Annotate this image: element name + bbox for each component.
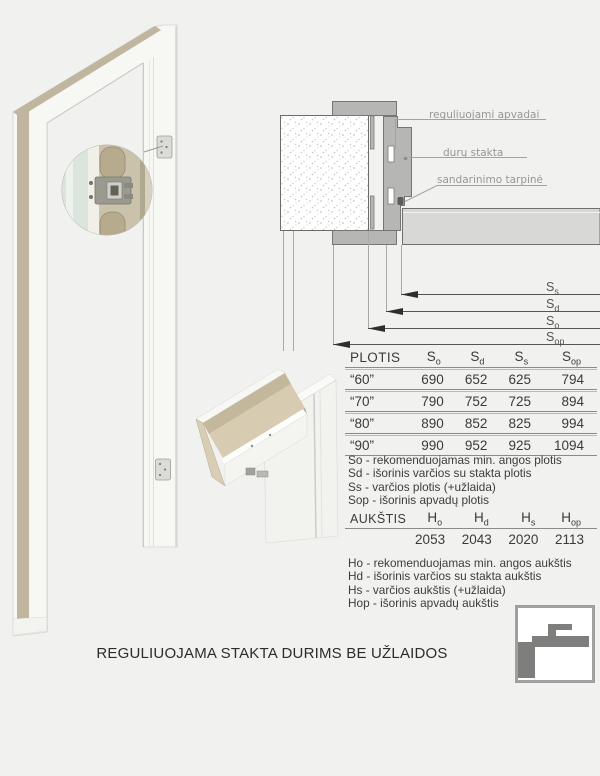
row-label: “70” — [345, 391, 413, 412]
frame-profile-logo — [517, 607, 594, 682]
legend-line: Ss - varčios plotis (+užlaida) — [348, 481, 562, 494]
door-leaf-section — [403, 209, 600, 245]
catalog-page: reguliuojami apvadai durų stakta sandari… — [0, 0, 600, 776]
column-header: Hop — [551, 510, 597, 529]
table-cell: 2113 — [551, 530, 597, 549]
leader-lines — [396, 120, 548, 202]
table-cell: 894 — [544, 391, 597, 412]
dimension-label-sop: Sop — [546, 330, 564, 347]
table-row: “70” 790 752 725 894 — [345, 391, 597, 412]
table-row: “80” 890 852 825 994 — [345, 413, 597, 434]
cross-section-diagram — [281, 102, 600, 245]
hinge-detail-magnifier — [62, 145, 155, 244]
legend-line: Hd - išorinis varčios su stakta aukštis — [348, 570, 572, 583]
plotis-table: PLOTIS So Sd Ss Sop “60” 690 652 625 794… — [345, 348, 597, 457]
column-header: Sop — [544, 349, 597, 368]
table-cell: 790 — [413, 391, 457, 412]
table-cell: 852 — [457, 413, 501, 434]
label-duru-stakta: durų stakta — [443, 147, 503, 159]
table-row: 2053 2043 2020 2113 — [345, 530, 597, 549]
table-cell: 2020 — [505, 530, 552, 549]
table-cell: 652 — [457, 369, 501, 390]
table-row: “60” 690 652 625 794 — [345, 369, 597, 390]
table-cell: 625 — [500, 369, 544, 390]
legend-line: Ho - rekomenduojamas min. angos aukštis — [348, 557, 572, 570]
row-label: “80” — [345, 413, 413, 434]
table-cell: 890 — [413, 413, 457, 434]
label-sandarinimo-tarpine: sandarinimo tarpinė — [437, 174, 543, 186]
column-header: Ho — [411, 510, 458, 529]
page-title: REGULIUOJAMA STAKTA DURIMS BE UŽLAIDOS — [32, 645, 512, 662]
trim-top — [333, 102, 397, 116]
legend-line: Sop - išorinis apvadų plotis — [348, 494, 562, 507]
frame-corner-3d — [196, 369, 338, 543]
hinge-plate-bottom-icon — [156, 459, 171, 480]
plotis-legend: So - rekomenduojamas min. angos plotis S… — [348, 454, 562, 508]
legend-line: Hop - išorinis apvadų aukštis — [348, 597, 572, 610]
trim-bottom — [333, 231, 397, 245]
column-header: Sd — [457, 349, 501, 368]
table-cell: 690 — [413, 369, 457, 390]
dimension-arrows — [333, 291, 418, 348]
label-reguliuojami-apvadai: reguliuojami apvadai — [429, 109, 539, 121]
door-frame-illustration — [13, 25, 177, 636]
column-header: So — [413, 349, 457, 368]
frame-body — [13, 25, 177, 636]
table-cell: 2043 — [458, 530, 505, 549]
gasket-section — [398, 197, 404, 205]
table-cell: 2053 — [411, 530, 458, 549]
aukstis-title: AUKŠTIS — [345, 510, 411, 529]
aukstis-table: AUKŠTIS Ho Hd Hs Hop 2053 2043 2020 2113 — [345, 509, 597, 550]
plotis-title: PLOTIS — [345, 349, 413, 368]
plotis-header-row: PLOTIS So Sd Ss Sop — [345, 349, 597, 368]
frame-top-edge — [13, 26, 161, 117]
table-cell: 825 — [500, 413, 544, 434]
table-cell: 994 — [544, 413, 597, 434]
column-header: Hd — [458, 510, 505, 529]
legend-line: Hs - varčios aukštis (+užlaida) — [348, 584, 572, 597]
table-cell: 794 — [544, 369, 597, 390]
table-cell: 752 — [457, 391, 501, 412]
aukstis-legend: Ho - rekomenduojamas min. angos aukštis … — [348, 557, 572, 611]
legend-line: Sd - išorinis varčios su stakta plotis — [348, 467, 562, 480]
wall-section — [281, 116, 369, 231]
column-header: Hs — [505, 510, 552, 529]
dimension-label-ss: Ss — [546, 280, 559, 297]
aukstis-header-row: AUKŠTIS Ho Hd Hs Hop — [345, 510, 597, 529]
table-cell: 725 — [500, 391, 544, 412]
column-header: Ss — [500, 349, 544, 368]
dimension-label-sd: Sd — [546, 297, 559, 314]
frame-left-edge — [17, 108, 29, 622]
row-label: “60” — [345, 369, 413, 390]
legend-line: So - rekomenduojamas min. angos plotis — [348, 454, 562, 467]
dimension-label-so: So — [546, 314, 559, 331]
